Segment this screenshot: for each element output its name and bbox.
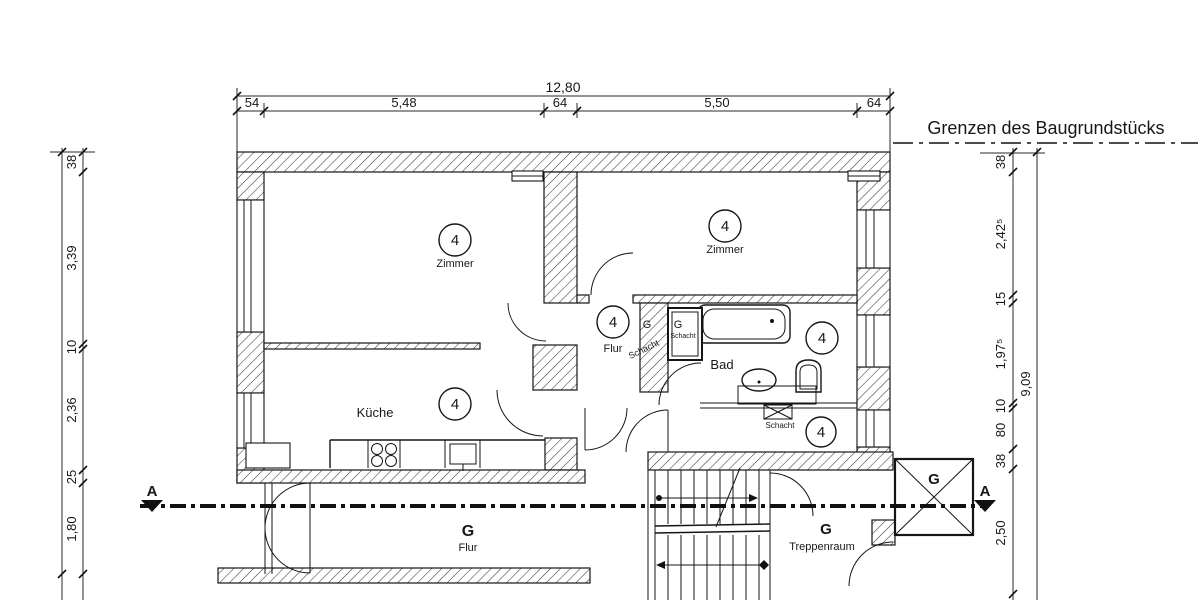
dim-left-seg-3: 2,36	[64, 397, 79, 422]
dim-top-seg-2: 64	[553, 95, 567, 110]
kitchen-sink-icon	[450, 444, 476, 471]
dim-right-lower: 2,50	[993, 520, 1008, 545]
stove-icon	[372, 444, 397, 467]
ground-trep-g: G	[820, 521, 832, 538]
shaft-g-box-label: G	[928, 471, 940, 488]
dim-top-seg-4: 64	[867, 95, 881, 110]
unit-circle-kueche: 4 Küche	[357, 388, 471, 420]
dim-left-seg-0: 38	[64, 155, 79, 169]
unit-circle-zimmer-left: 4 Zimmer	[436, 224, 474, 270]
stair-width-line	[656, 560, 769, 570]
kitchen-counter	[246, 440, 545, 471]
stairs	[655, 468, 770, 600]
dim-left-seg-1: 3,39	[64, 245, 79, 270]
dim-top-overall: 12,80	[545, 79, 580, 95]
dimension-top: 12,80 54 5,48 64 5,50 64	[233, 79, 894, 152]
bathtub-icon	[698, 305, 790, 343]
shaft-g-box: G	[895, 459, 973, 535]
dim-right-seg-3: 1,97⁵	[993, 339, 1008, 370]
dim-left-seg-2: 10	[64, 340, 79, 354]
dim-right-seg-5: 80	[993, 423, 1008, 437]
shaft-label-strip: Schacht	[766, 421, 796, 430]
unit-circle-flur: 4 Flur	[597, 306, 629, 355]
property-boundary-label: Grenzen des Baugrundstücks	[927, 118, 1164, 138]
ground-treppenraum-label: G Treppenraum	[789, 521, 855, 553]
dim-right-overall: 9,09	[1018, 371, 1033, 396]
dim-right-seg-0: 38	[993, 155, 1008, 169]
walls-layer	[218, 152, 895, 600]
unit-number: 4	[721, 218, 729, 235]
unit-number: 4	[609, 314, 617, 331]
dim-left-seg-5: 1,80	[64, 516, 79, 541]
unit-circle-strip: 4	[806, 417, 836, 447]
shaft-g-right: G	[674, 319, 683, 331]
ground-trep-name: Treppenraum	[789, 541, 855, 553]
room-label-bad: Bad	[710, 357, 733, 372]
room-label-kueche: Küche	[357, 405, 394, 420]
dim-right-seg-1: 2,42⁵	[993, 219, 1008, 250]
section-marker-left: A	[147, 483, 158, 500]
ground-flur-name: Flur	[459, 542, 478, 554]
shaft-fixture-icon	[764, 405, 792, 419]
shaft-label-inner: Schacht	[670, 333, 695, 340]
room-markers: 4 Zimmer 4 Zimmer 4 Küche 4 Flur 4 Bad 4	[357, 210, 855, 554]
unit-number: 4	[451, 396, 459, 413]
dim-top-seg-1: 5,48	[391, 95, 416, 110]
dimension-left: 38 3,39 10 2,36 25 1,80	[50, 148, 95, 600]
shaft-g-left: G	[643, 319, 652, 331]
washbasin-icon	[738, 369, 816, 404]
ground-flur-g: G	[462, 523, 474, 540]
dim-top-seg-0: 54	[245, 95, 259, 110]
room-label-flur: Flur	[604, 343, 623, 355]
property-boundary: Grenzen des Baugrundstücks	[893, 118, 1198, 143]
ground-flur-label: G Flur	[459, 523, 478, 554]
unit-number: 4	[451, 232, 459, 249]
floor-plan-svg: Grenzen des Baugrundstücks 12,80 54 5,48…	[0, 0, 1200, 600]
dimension-right: 38 2,42⁵ 15 1,97⁵ 10 80 38 2,50 9,09	[980, 148, 1045, 600]
dim-right-seg-2: 15	[993, 292, 1008, 306]
unit-number: 4	[817, 424, 825, 441]
section-line: A A	[140, 483, 996, 512]
room-label-zimmer-left: Zimmer	[436, 258, 474, 270]
section-marker-right: A	[980, 483, 991, 500]
dim-right-seg-4: 10	[993, 399, 1008, 413]
dim-left-seg-4: 25	[64, 470, 79, 484]
section-arrow-right	[974, 500, 996, 512]
toilet-icon	[796, 360, 821, 392]
unit-circle-zimmer-right: 4 Zimmer	[706, 210, 744, 256]
dim-top-seg-3: 5,50	[704, 95, 729, 110]
floor-plan-page: Grenzen des Baugrundstücks 12,80 54 5,48…	[0, 0, 1200, 600]
room-label-zimmer-right: Zimmer	[706, 244, 744, 256]
unit-number: 4	[818, 330, 826, 347]
dim-right-seg-6: 38	[993, 454, 1008, 468]
